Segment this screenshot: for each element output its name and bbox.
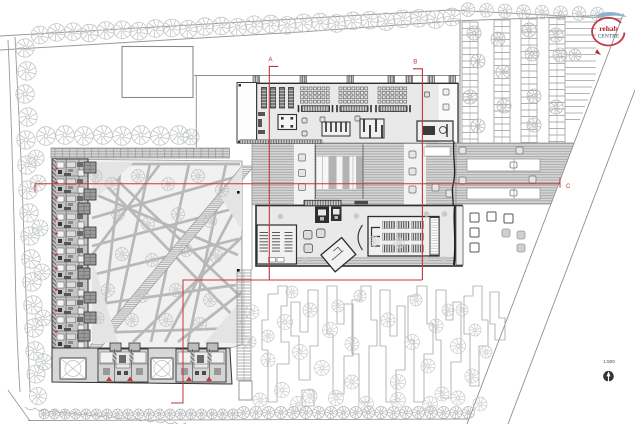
svg-text:CENTRE: CENTRE (598, 33, 620, 39)
svg-text:B: B (413, 59, 417, 66)
svg-text:rehab: rehab (599, 24, 618, 33)
svg-text:1:500: 1:500 (603, 359, 615, 364)
svg-text:C: C (566, 184, 571, 190)
